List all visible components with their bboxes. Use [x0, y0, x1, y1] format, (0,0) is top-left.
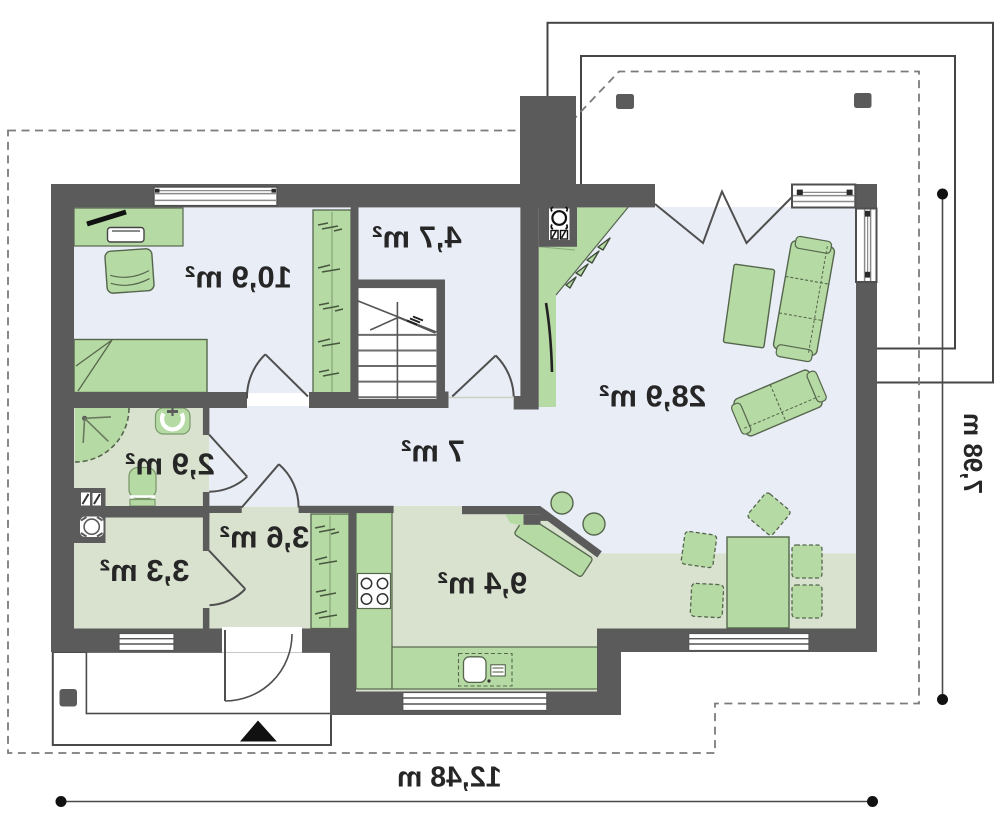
svg-text:12,48 m: 12,48 m: [397, 762, 502, 794]
svg-text:28,9 m²: 28,9 m²: [599, 379, 706, 414]
svg-text:2,9 m²: 2,9 m²: [125, 447, 215, 482]
svg-text:9,4 m²: 9,4 m²: [438, 566, 528, 601]
svg-text:7,98 m: 7,98 m: [958, 413, 988, 494]
svg-text:3,3 m²: 3,3 m²: [100, 553, 190, 588]
svg-text:4,7 m²: 4,7 m²: [372, 220, 462, 255]
svg-text:10,9 m²: 10,9 m²: [185, 260, 292, 295]
svg-text:7 m²: 7 m²: [401, 434, 465, 469]
svg-text:3,6 m²: 3,6 m²: [220, 520, 310, 555]
